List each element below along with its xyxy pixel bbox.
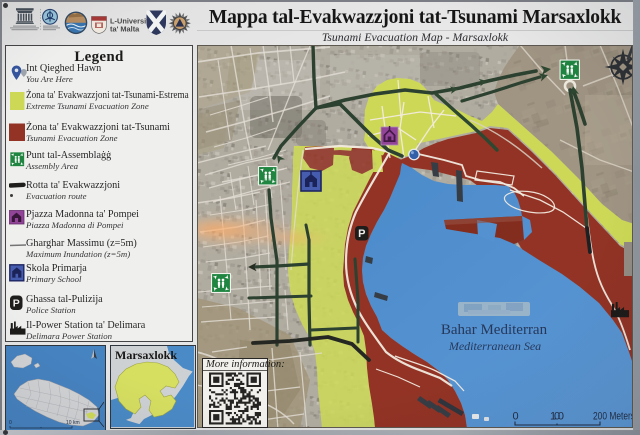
svg-text:Mediterranean Sea: Mediterranean Sea [448,339,541,353]
svg-text:200 Meters: 200 Meters [593,411,633,423]
svg-text:P: P [358,228,365,240]
svg-text:P: P [13,298,20,310]
svg-text:0: 0 [512,411,518,423]
svg-text:Marsaxlokk: Marsaxlokk [115,348,177,362]
svg-text:0: 0 [9,420,12,426]
svg-text:Bahar Mediterran: Bahar Mediterran [441,322,548,338]
svg-text:ta' Malta: ta' Malta [110,25,140,34]
svg-text:10 km: 10 km [66,420,80,426]
svg-text:100: 100 [550,411,564,423]
